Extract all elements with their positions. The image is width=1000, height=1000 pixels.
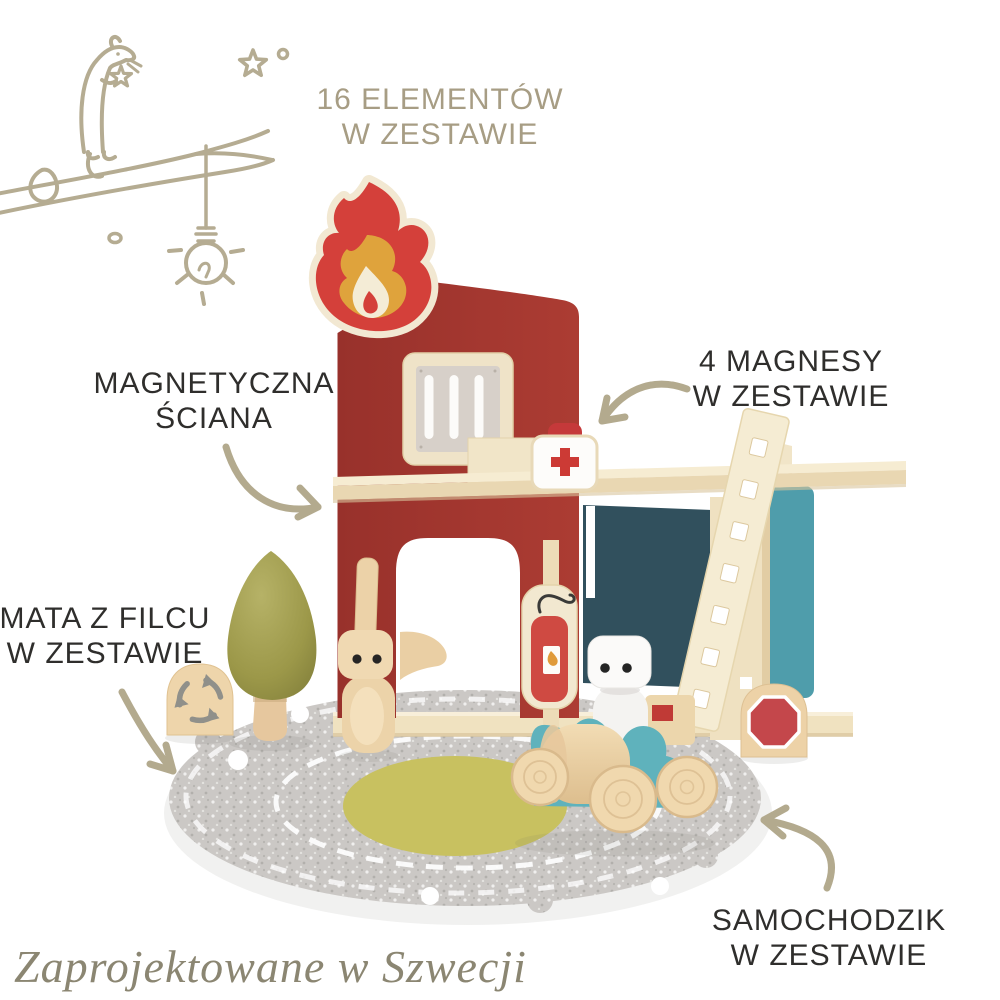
arrow-to-first-aid-kit-icon bbox=[602, 384, 687, 421]
annotation-line: W ZESTAWIE bbox=[712, 938, 946, 973]
annotation-felt-mat: MATA Z FILCU W ZESTAWIE bbox=[0, 601, 210, 671]
annotation-line: SAMOCHODZIK bbox=[712, 903, 946, 938]
arrow-to-magnetic-wall-icon bbox=[226, 447, 318, 517]
arrow-to-car-icon bbox=[764, 808, 831, 888]
dot-sketch bbox=[109, 234, 121, 243]
annotation-line: MAGNETYCZNA bbox=[93, 366, 334, 401]
annotation-line: W ZESTAWIE bbox=[316, 117, 563, 152]
annotation-magnets: 4 MAGNESY W ZESTAWIE bbox=[693, 344, 890, 414]
flame-sign bbox=[316, 182, 432, 331]
branch-sketch bbox=[0, 131, 268, 194]
annotation-line: W ZESTAWIE bbox=[0, 636, 210, 671]
annotation-line: 4 MAGNESY bbox=[693, 344, 890, 379]
roundabout-sign bbox=[167, 664, 233, 735]
annotation-magnetic-wall: MAGNETYCZNA ŚCIANA bbox=[93, 366, 334, 436]
annotation-toy-car: SAMOCHODZIK W ZESTAWIE bbox=[712, 903, 946, 973]
dot-sketch bbox=[279, 50, 288, 59]
car-wheel bbox=[512, 749, 568, 805]
annotation-line: 16 ELEMENTÓW bbox=[316, 82, 563, 117]
mouse-sketch bbox=[81, 47, 134, 152]
annotation-piece-count: 16 ELEMENTÓW W ZESTAWIE bbox=[316, 82, 563, 152]
annotation-line: MATA Z FILCU bbox=[0, 601, 210, 636]
garage-side-wall bbox=[768, 486, 814, 698]
stop-sign bbox=[741, 684, 807, 757]
product-showcase: 16 ELEMENTÓW W ZESTAWIE MAGNETYCZNA ŚCIA… bbox=[0, 0, 1000, 1000]
car-wheel bbox=[590, 766, 656, 832]
star-icon bbox=[240, 50, 267, 75]
annotation-line: W ZESTAWIE bbox=[693, 379, 890, 414]
car-wheel bbox=[657, 757, 717, 817]
annotation-line: ŚCIANA bbox=[93, 401, 334, 436]
arrow-to-felt-mat-icon bbox=[122, 692, 173, 771]
designed-in-sweden-tagline: Zaprojektowane w Szwecji bbox=[14, 940, 527, 993]
mouse-on-branch-sketch-icon bbox=[0, 37, 288, 304]
dog-figure bbox=[400, 632, 447, 680]
